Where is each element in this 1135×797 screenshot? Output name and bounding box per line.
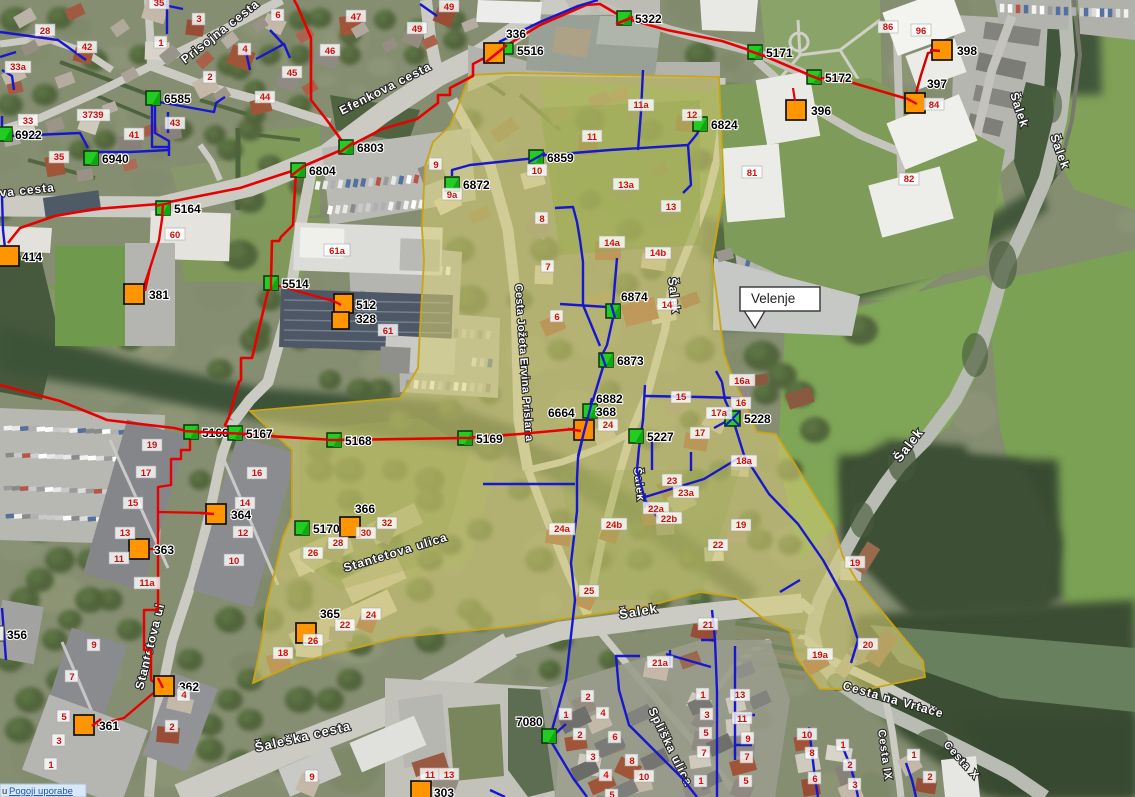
svg-text:6940: 6940 — [102, 152, 129, 166]
svg-text:49: 49 — [444, 2, 455, 13]
svg-text:22: 22 — [713, 540, 724, 551]
svg-text:23: 23 — [667, 476, 678, 487]
svg-text:13: 13 — [444, 770, 455, 781]
svg-text:86: 86 — [883, 22, 894, 33]
svg-text:6664: 6664 — [548, 406, 575, 420]
svg-text:8: 8 — [809, 748, 814, 759]
svg-text:2: 2 — [207, 72, 212, 83]
svg-text:7080: 7080 — [516, 715, 543, 729]
svg-text:35: 35 — [154, 0, 165, 9]
svg-text:16: 16 — [252, 468, 263, 479]
svg-text:33a: 33a — [10, 62, 27, 73]
svg-text:1: 1 — [698, 776, 704, 787]
svg-text:60: 60 — [170, 230, 181, 241]
svg-text:u: u — [2, 786, 7, 797]
svg-text:13: 13 — [666, 202, 677, 213]
svg-text:5322: 5322 — [635, 12, 662, 26]
svg-text:61: 61 — [383, 326, 394, 337]
svg-text:396: 396 — [811, 104, 831, 118]
svg-text:11: 11 — [114, 554, 125, 565]
svg-text:14: 14 — [240, 498, 251, 509]
svg-text:19: 19 — [147, 440, 158, 451]
svg-text:303: 303 — [434, 786, 454, 797]
svg-text:96: 96 — [916, 26, 927, 37]
svg-text:84: 84 — [929, 100, 940, 111]
svg-text:23a: 23a — [678, 488, 695, 499]
svg-text:9: 9 — [309, 772, 314, 783]
svg-text:15: 15 — [676, 392, 687, 403]
svg-text:5514: 5514 — [282, 277, 309, 291]
svg-text:19: 19 — [736, 520, 747, 531]
svg-text:24: 24 — [603, 420, 614, 431]
svg-text:24a: 24a — [554, 524, 571, 535]
svg-text:14a: 14a — [604, 238, 621, 249]
svg-text:14b: 14b — [650, 248, 667, 259]
svg-text:Pogoji uporabe: Pogoji uporabe — [9, 786, 73, 797]
svg-text:328: 328 — [356, 312, 376, 326]
svg-text:49: 49 — [412, 24, 423, 35]
svg-text:6873: 6873 — [617, 354, 644, 368]
svg-text:35: 35 — [54, 152, 65, 163]
svg-text:5: 5 — [703, 728, 709, 739]
svg-text:2: 2 — [585, 692, 590, 703]
svg-text:12: 12 — [687, 110, 698, 121]
svg-text:6872: 6872 — [463, 178, 490, 192]
svg-text:5: 5 — [61, 712, 67, 723]
svg-text:44: 44 — [260, 92, 271, 103]
svg-text:4: 4 — [242, 44, 248, 55]
svg-text:28: 28 — [333, 538, 344, 549]
svg-text:42: 42 — [82, 42, 93, 53]
svg-text:6: 6 — [275, 10, 280, 21]
svg-text:21: 21 — [703, 620, 714, 631]
svg-text:6: 6 — [612, 732, 617, 743]
svg-text:61a: 61a — [329, 246, 346, 257]
svg-text:26: 26 — [308, 548, 319, 559]
svg-text:12: 12 — [238, 528, 249, 539]
svg-text:17a: 17a — [711, 408, 728, 419]
svg-text:2: 2 — [169, 722, 174, 733]
svg-text:398: 398 — [957, 44, 977, 58]
svg-text:18a: 18a — [736, 456, 753, 467]
svg-text:3: 3 — [852, 780, 857, 791]
svg-text:41: 41 — [129, 130, 140, 141]
svg-text:19a: 19a — [812, 650, 829, 661]
svg-text:3: 3 — [56, 736, 61, 747]
svg-text:4: 4 — [600, 708, 606, 719]
svg-text:363: 363 — [154, 543, 174, 557]
svg-text:14: 14 — [662, 300, 673, 311]
svg-text:6585: 6585 — [164, 92, 191, 106]
svg-text:10: 10 — [802, 730, 813, 741]
svg-text:11: 11 — [737, 714, 748, 725]
svg-text:1: 1 — [911, 750, 917, 761]
svg-text:3: 3 — [196, 14, 201, 25]
svg-text:47: 47 — [351, 12, 362, 23]
svg-text:6824: 6824 — [711, 118, 738, 132]
svg-text:9: 9 — [433, 160, 438, 171]
svg-text:381: 381 — [149, 288, 169, 302]
svg-text:356: 356 — [7, 628, 27, 642]
svg-text:Velenje: Velenje — [751, 291, 795, 306]
svg-text:7: 7 — [744, 752, 749, 763]
svg-text:4: 4 — [603, 770, 609, 781]
svg-text:15: 15 — [128, 498, 139, 509]
svg-text:364: 364 — [231, 508, 251, 522]
svg-text:30: 30 — [361, 528, 372, 539]
svg-text:5170: 5170 — [313, 522, 340, 536]
svg-text:26: 26 — [308, 636, 319, 647]
svg-text:11: 11 — [425, 770, 436, 781]
svg-text:6922: 6922 — [15, 128, 42, 142]
svg-text:19: 19 — [850, 558, 861, 569]
svg-text:6874: 6874 — [621, 290, 648, 304]
svg-text:21a: 21a — [652, 658, 669, 669]
svg-text:10: 10 — [532, 166, 543, 177]
svg-text:8: 8 — [629, 756, 634, 767]
svg-text:22b: 22b — [661, 514, 678, 525]
svg-text:25: 25 — [584, 586, 595, 597]
svg-text:11: 11 — [587, 132, 598, 143]
svg-text:5171: 5171 — [766, 46, 793, 60]
svg-text:7: 7 — [701, 748, 706, 759]
svg-text:7: 7 — [545, 262, 550, 273]
svg-text:414: 414 — [22, 250, 42, 264]
svg-text:2: 2 — [847, 760, 852, 771]
svg-text:5172: 5172 — [825, 71, 852, 85]
svg-text:5: 5 — [743, 776, 749, 787]
svg-text:5169: 5169 — [476, 432, 503, 446]
svg-text:24: 24 — [366, 610, 377, 621]
svg-text:1: 1 — [840, 740, 846, 751]
svg-text:33: 33 — [23, 116, 34, 127]
svg-text:18: 18 — [278, 648, 289, 659]
svg-text:1: 1 — [48, 760, 54, 771]
svg-text:5228: 5228 — [744, 412, 771, 426]
svg-text:13: 13 — [120, 528, 131, 539]
svg-text:16a: 16a — [734, 376, 751, 387]
svg-text:366: 366 — [355, 502, 375, 516]
svg-text:81: 81 — [747, 168, 758, 179]
svg-text:8: 8 — [539, 214, 544, 225]
svg-text:5: 5 — [609, 790, 615, 797]
svg-text:1: 1 — [158, 38, 164, 49]
svg-text:7: 7 — [69, 672, 74, 683]
svg-text:24b: 24b — [606, 520, 623, 531]
svg-text:11a: 11a — [633, 100, 649, 111]
svg-text:17: 17 — [695, 428, 706, 439]
svg-text:361: 361 — [99, 719, 119, 733]
svg-text:1: 1 — [563, 710, 569, 721]
svg-text:336: 336 — [506, 27, 526, 41]
svg-text:5164: 5164 — [174, 202, 201, 216]
svg-text:9: 9 — [745, 734, 750, 745]
svg-text:10: 10 — [639, 772, 650, 783]
svg-text:82: 82 — [904, 174, 915, 185]
svg-text:6: 6 — [554, 312, 559, 323]
svg-text:5227: 5227 — [647, 430, 674, 444]
svg-text:22: 22 — [340, 620, 351, 631]
svg-text:3739: 3739 — [82, 110, 103, 121]
svg-text:45: 45 — [287, 68, 298, 79]
svg-text:43: 43 — [170, 118, 181, 129]
svg-text:2: 2 — [577, 730, 582, 741]
svg-text:368: 368 — [596, 405, 616, 419]
svg-text:3: 3 — [590, 752, 595, 763]
svg-text:6804: 6804 — [309, 164, 336, 178]
svg-text:13: 13 — [735, 690, 746, 701]
svg-text:20: 20 — [863, 640, 874, 651]
svg-text:6882: 6882 — [596, 392, 623, 406]
svg-text:11a: 11a — [139, 578, 155, 589]
svg-text:17: 17 — [141, 468, 152, 479]
svg-text:16: 16 — [736, 398, 747, 409]
svg-text:3: 3 — [704, 710, 709, 721]
svg-text:46: 46 — [325, 46, 336, 57]
svg-text:5167: 5167 — [246, 427, 273, 441]
svg-text:512: 512 — [356, 298, 376, 312]
svg-text:13a: 13a — [618, 180, 635, 191]
svg-text:6803: 6803 — [357, 141, 384, 155]
svg-text:28: 28 — [40, 26, 51, 37]
svg-text:5168: 5168 — [345, 434, 372, 448]
svg-text:397: 397 — [927, 77, 947, 91]
svg-text:10: 10 — [229, 556, 240, 567]
svg-text:9: 9 — [91, 640, 96, 651]
svg-text:9a: 9a — [447, 190, 458, 201]
svg-text:6: 6 — [812, 774, 817, 785]
svg-text:4: 4 — [181, 690, 187, 701]
svg-text:32: 32 — [382, 518, 393, 529]
svg-text:6859: 6859 — [547, 151, 574, 165]
svg-text:2: 2 — [927, 772, 932, 783]
svg-text:5516: 5516 — [517, 44, 544, 58]
svg-text:1: 1 — [700, 690, 706, 701]
